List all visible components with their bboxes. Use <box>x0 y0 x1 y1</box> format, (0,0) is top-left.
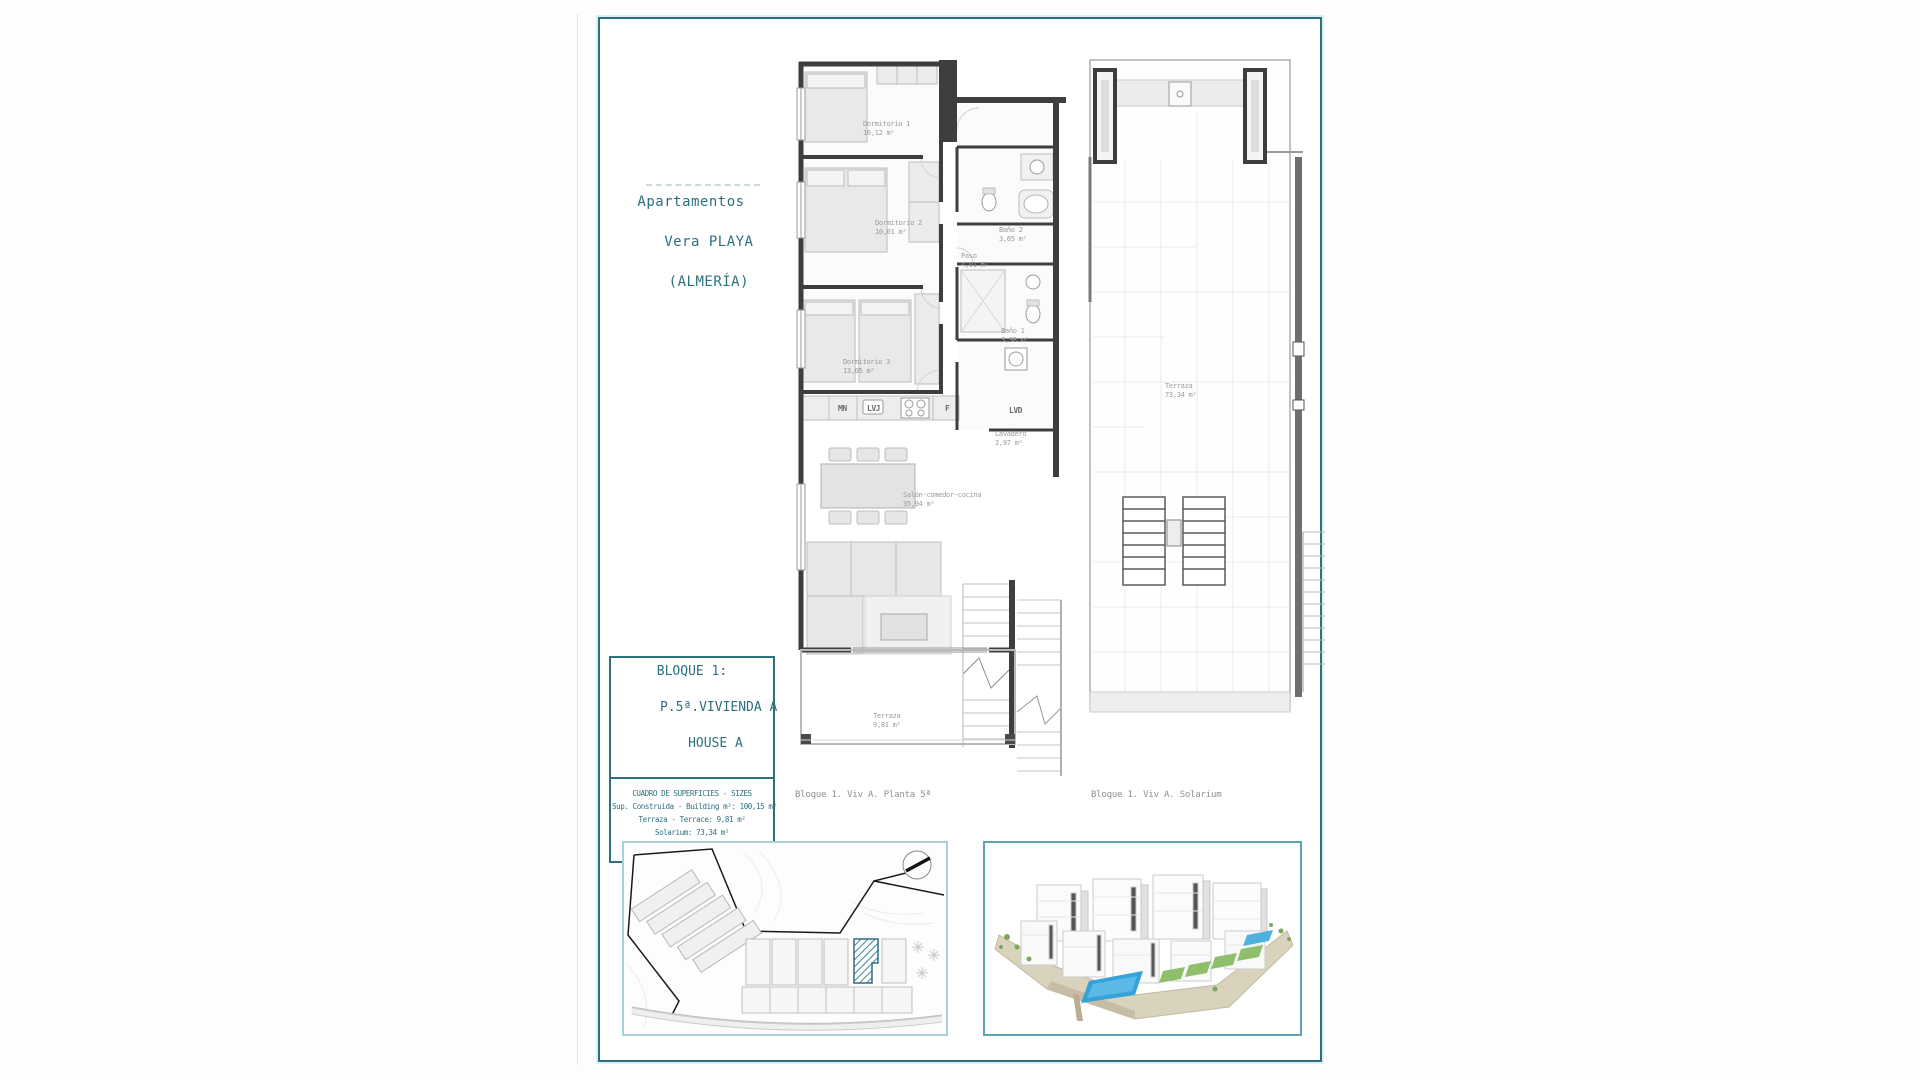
unit-vivienda: P.5ª.VIVIENDA A <box>660 700 777 715</box>
project-title-line3: (ALMERÍA) <box>669 274 749 290</box>
solarium-plan-drawing <box>1085 52 1325 787</box>
room-label-dormitorio-3: Dormitorio 313,05 m² <box>843 358 890 375</box>
unit-bloque: BLOQUE 1: <box>657 664 727 679</box>
appliance-label-f: F <box>945 404 949 413</box>
aerial-render-figure <box>983 841 1302 1036</box>
room-label-dormitorio-1: Dormitorio 116,12 m² <box>863 120 910 137</box>
unit-house: HOUSE A <box>688 736 743 751</box>
palm-tree-icons <box>912 941 940 979</box>
page-edge-shadow <box>577 14 578 1065</box>
room-label-lavadero: Lavadero2,97 m² <box>995 430 1026 447</box>
appliance-label-lvj: LVJ <box>867 404 880 413</box>
building-row-lower <box>742 939 912 1013</box>
pergola-band <box>1115 80 1245 106</box>
apartment-floor-plan-drawing <box>793 52 1068 787</box>
communal-stairs <box>1303 532 1325 692</box>
solarium-plan-caption: Bloque 1. Viv A. Solarium <box>1091 790 1221 800</box>
interior-stairs <box>963 584 1009 747</box>
sizes-row-terrace: Terraza - Terrace: 9,81 m² <box>612 813 772 826</box>
floor-plan-caption: Bloque 1. Viv A. Planta 5ª <box>795 790 931 800</box>
room-label-paso: Paso4,01 m² <box>961 252 988 269</box>
compass-icon <box>903 851 931 879</box>
apartment-floor-plan-figure <box>793 52 1068 787</box>
ac-unit-icon <box>1169 82 1191 106</box>
room-label-solarium-terraza: Terraza73,34 m² <box>1165 382 1196 399</box>
site-plan-figure <box>622 841 948 1036</box>
room-label-bano-2: Baño 23,65 m² <box>999 226 1026 243</box>
room-label-dormitorio-2: Dormitorio 210,01 m² <box>875 219 922 236</box>
room-label-bano-1: Baño 13,98 m² <box>1001 327 1028 344</box>
site-plan-drawing <box>624 843 946 1034</box>
sizes-row-solarium: Solarium: 73,34 m² <box>612 826 772 839</box>
unit-info-box: BLOQUE 1: P.5ª.VIVIENDA A HOUSE A CUADRO… <box>609 656 775 863</box>
building-cluster-upper <box>631 857 761 986</box>
solarium-bottom-edge <box>1090 692 1290 712</box>
project-title-line2: Vera PLAYA <box>664 234 753 250</box>
sizes-row-built: Sup. Construida - Building m²: 100,15 m² <box>612 800 772 813</box>
sizes-heading: CUADRO DE SUPERFICIES - SIZES <box>612 787 772 800</box>
unit-title-block: BLOQUE 1: P.5ª.VIVIENDA A HOUSE A <box>611 658 773 779</box>
project-title-line1: Apartamentos <box>637 194 744 210</box>
appliance-label-lvd: LVD <box>1009 406 1022 415</box>
project-title: Apartamentos Vera PLAYA (ALMERÍA) <box>603 192 779 312</box>
faded-logo-line <box>646 184 760 186</box>
exterior-stairs <box>1017 600 1061 776</box>
solarium-plan-figure <box>1085 52 1325 787</box>
appliance-label-mn: MN <box>838 404 847 413</box>
room-label-terraza: Terraza9,81 m² <box>873 712 900 729</box>
terrace-layer <box>801 650 1015 744</box>
room-label-salon: Salón-comedor-cocina35,94 m² <box>903 491 981 508</box>
aerial-render-drawing <box>985 843 1300 1034</box>
plan-sheet-page: Apartamentos Vera PLAYA (ALMERÍA) <box>595 14 1325 1065</box>
highlighted-unit-parcel <box>854 939 878 983</box>
